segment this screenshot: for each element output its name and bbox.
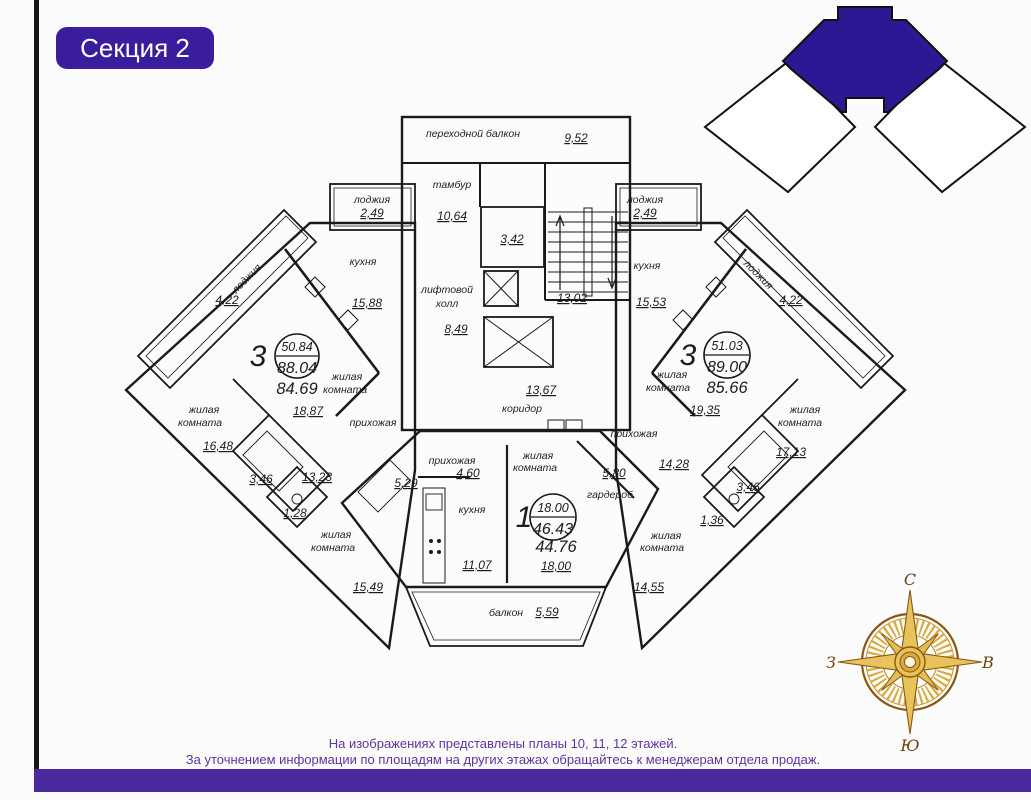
footer-line-1: На изображениях представлены планы 10, 1… bbox=[329, 736, 678, 751]
room-label: жилая bbox=[522, 450, 554, 462]
room-area: 14,55 bbox=[634, 580, 664, 594]
room-label: тамбур bbox=[433, 179, 472, 191]
rooms-count: 3 bbox=[680, 339, 697, 372]
reduced-area: 85.66 bbox=[706, 379, 748, 397]
room-label: лоджия bbox=[740, 257, 775, 292]
elevator-shafts bbox=[484, 271, 553, 367]
room-area: 2,49 bbox=[632, 206, 657, 220]
room-area: 13,02 bbox=[557, 291, 587, 305]
room-label: коридор bbox=[502, 403, 542, 415]
room-label: комната bbox=[778, 417, 822, 429]
room-area: 4,22 bbox=[215, 293, 239, 307]
room-area: 3,46 bbox=[736, 480, 760, 494]
room-area: 4,60 bbox=[456, 466, 480, 480]
living-area: 50.84 bbox=[281, 340, 312, 354]
apartment-center-walls bbox=[358, 441, 634, 583]
bottom-accent-bar bbox=[34, 769, 1031, 792]
room-area: 3,42 bbox=[500, 232, 524, 246]
compass-south-label: Ю bbox=[899, 736, 919, 755]
room-area: 5,59 bbox=[535, 605, 559, 619]
room-label: балкон bbox=[489, 607, 523, 619]
apartment-center-labels: прихожая 4,60 5,29 кухня 11,07 жилая ком… bbox=[394, 450, 634, 619]
total-area: 46.43 bbox=[533, 521, 573, 538]
room-area: 13,23 bbox=[302, 470, 332, 484]
room-area: 3,46 bbox=[249, 472, 273, 486]
reduced-area: 84.69 bbox=[276, 380, 317, 398]
room-label: комната bbox=[323, 384, 367, 396]
floor-plan-page: Секция 2 bbox=[0, 0, 1031, 800]
room-label: переходной балкон bbox=[426, 128, 520, 140]
page-spine-edge bbox=[34, 0, 39, 770]
room-label: лифтовой bbox=[420, 284, 473, 296]
room-area: 17,13 bbox=[776, 445, 806, 459]
room-area: 18,87 bbox=[293, 404, 324, 418]
compass-rose-icon: С Ю З В bbox=[826, 570, 994, 755]
compass-north-label: С bbox=[904, 570, 916, 589]
compass-east-label: В bbox=[981, 653, 994, 672]
room-area: 14,28 bbox=[659, 457, 689, 471]
room-label: комната bbox=[311, 542, 355, 554]
apartment-right-area-stamp: 3 51.03 89.00 85.66 bbox=[680, 332, 750, 397]
room-label: комната bbox=[513, 462, 557, 474]
room-area: 15,49 bbox=[353, 580, 383, 594]
rooms-count: 3 bbox=[250, 340, 267, 373]
room-label: лоджия bbox=[229, 262, 264, 297]
section-badge-label: Секция 2 bbox=[80, 33, 190, 63]
room-area: 1,28 bbox=[283, 506, 307, 520]
room-label: кухня bbox=[350, 256, 377, 268]
building-key-plan bbox=[705, 7, 1025, 192]
section-badge: Секция 2 bbox=[56, 27, 214, 69]
room-label: прихожая bbox=[611, 428, 658, 440]
room-area: 18,00 bbox=[541, 559, 571, 573]
room-area: 2,49 bbox=[359, 206, 384, 220]
room-label: жилая bbox=[188, 404, 220, 416]
rooms-count: 1 bbox=[516, 501, 533, 534]
total-area: 89.00 bbox=[707, 359, 747, 376]
apartment-left-area-stamp: 3 50.84 88.04 84.69 bbox=[250, 334, 319, 398]
room-area: 19,35 bbox=[690, 403, 720, 417]
compass-west-label: З bbox=[826, 653, 836, 672]
floor-plan-canvas: Секция 2 bbox=[0, 0, 1031, 800]
room-label: жилая bbox=[331, 371, 363, 383]
room-label: комната bbox=[640, 542, 684, 554]
room-label: холл bbox=[435, 298, 459, 310]
room-label: комната bbox=[178, 417, 222, 429]
room-area: 15,53 bbox=[636, 295, 666, 309]
room-label: гардероб bbox=[587, 489, 634, 501]
room-label: комната bbox=[646, 382, 690, 394]
room-label: лоджия bbox=[353, 194, 391, 206]
apartment-center-area bbox=[342, 431, 658, 587]
room-area: 5,29 bbox=[394, 476, 418, 490]
room-area: 10,64 bbox=[437, 209, 467, 223]
room-label: жилая bbox=[789, 404, 821, 416]
living-area: 18.00 bbox=[537, 501, 568, 515]
room-area: 9,52 bbox=[564, 131, 588, 145]
total-area: 88.04 bbox=[277, 360, 317, 377]
room-area: 1,36 bbox=[700, 513, 724, 527]
room-area: 11,07 bbox=[462, 558, 492, 572]
room-label: жилая bbox=[650, 530, 682, 542]
room-label: жилая bbox=[320, 529, 352, 541]
room-area: 4,22 bbox=[779, 293, 803, 307]
reduced-area: 44.76 bbox=[535, 538, 577, 556]
apartment-center-area-stamp: 1 18.00 46.43 44.76 bbox=[516, 494, 578, 556]
room-area: 13,67 bbox=[526, 383, 557, 397]
room-area: 5,80 bbox=[602, 466, 626, 480]
room-area: 8,49 bbox=[444, 322, 468, 336]
room-label: лоджия bbox=[626, 194, 664, 206]
room-label: прихожая bbox=[350, 417, 397, 429]
footer-line-2: За уточнением информации по площадям на … bbox=[186, 752, 820, 767]
living-area: 51.03 bbox=[711, 339, 742, 353]
room-label: кухня bbox=[459, 504, 486, 516]
room-area: 15,88 bbox=[352, 296, 382, 310]
footer-notes: На изображениях представлены планы 10, 1… bbox=[186, 736, 820, 767]
room-label: кухня bbox=[634, 260, 661, 272]
room-area: 16,48 bbox=[203, 439, 233, 453]
core-block bbox=[402, 117, 630, 431]
